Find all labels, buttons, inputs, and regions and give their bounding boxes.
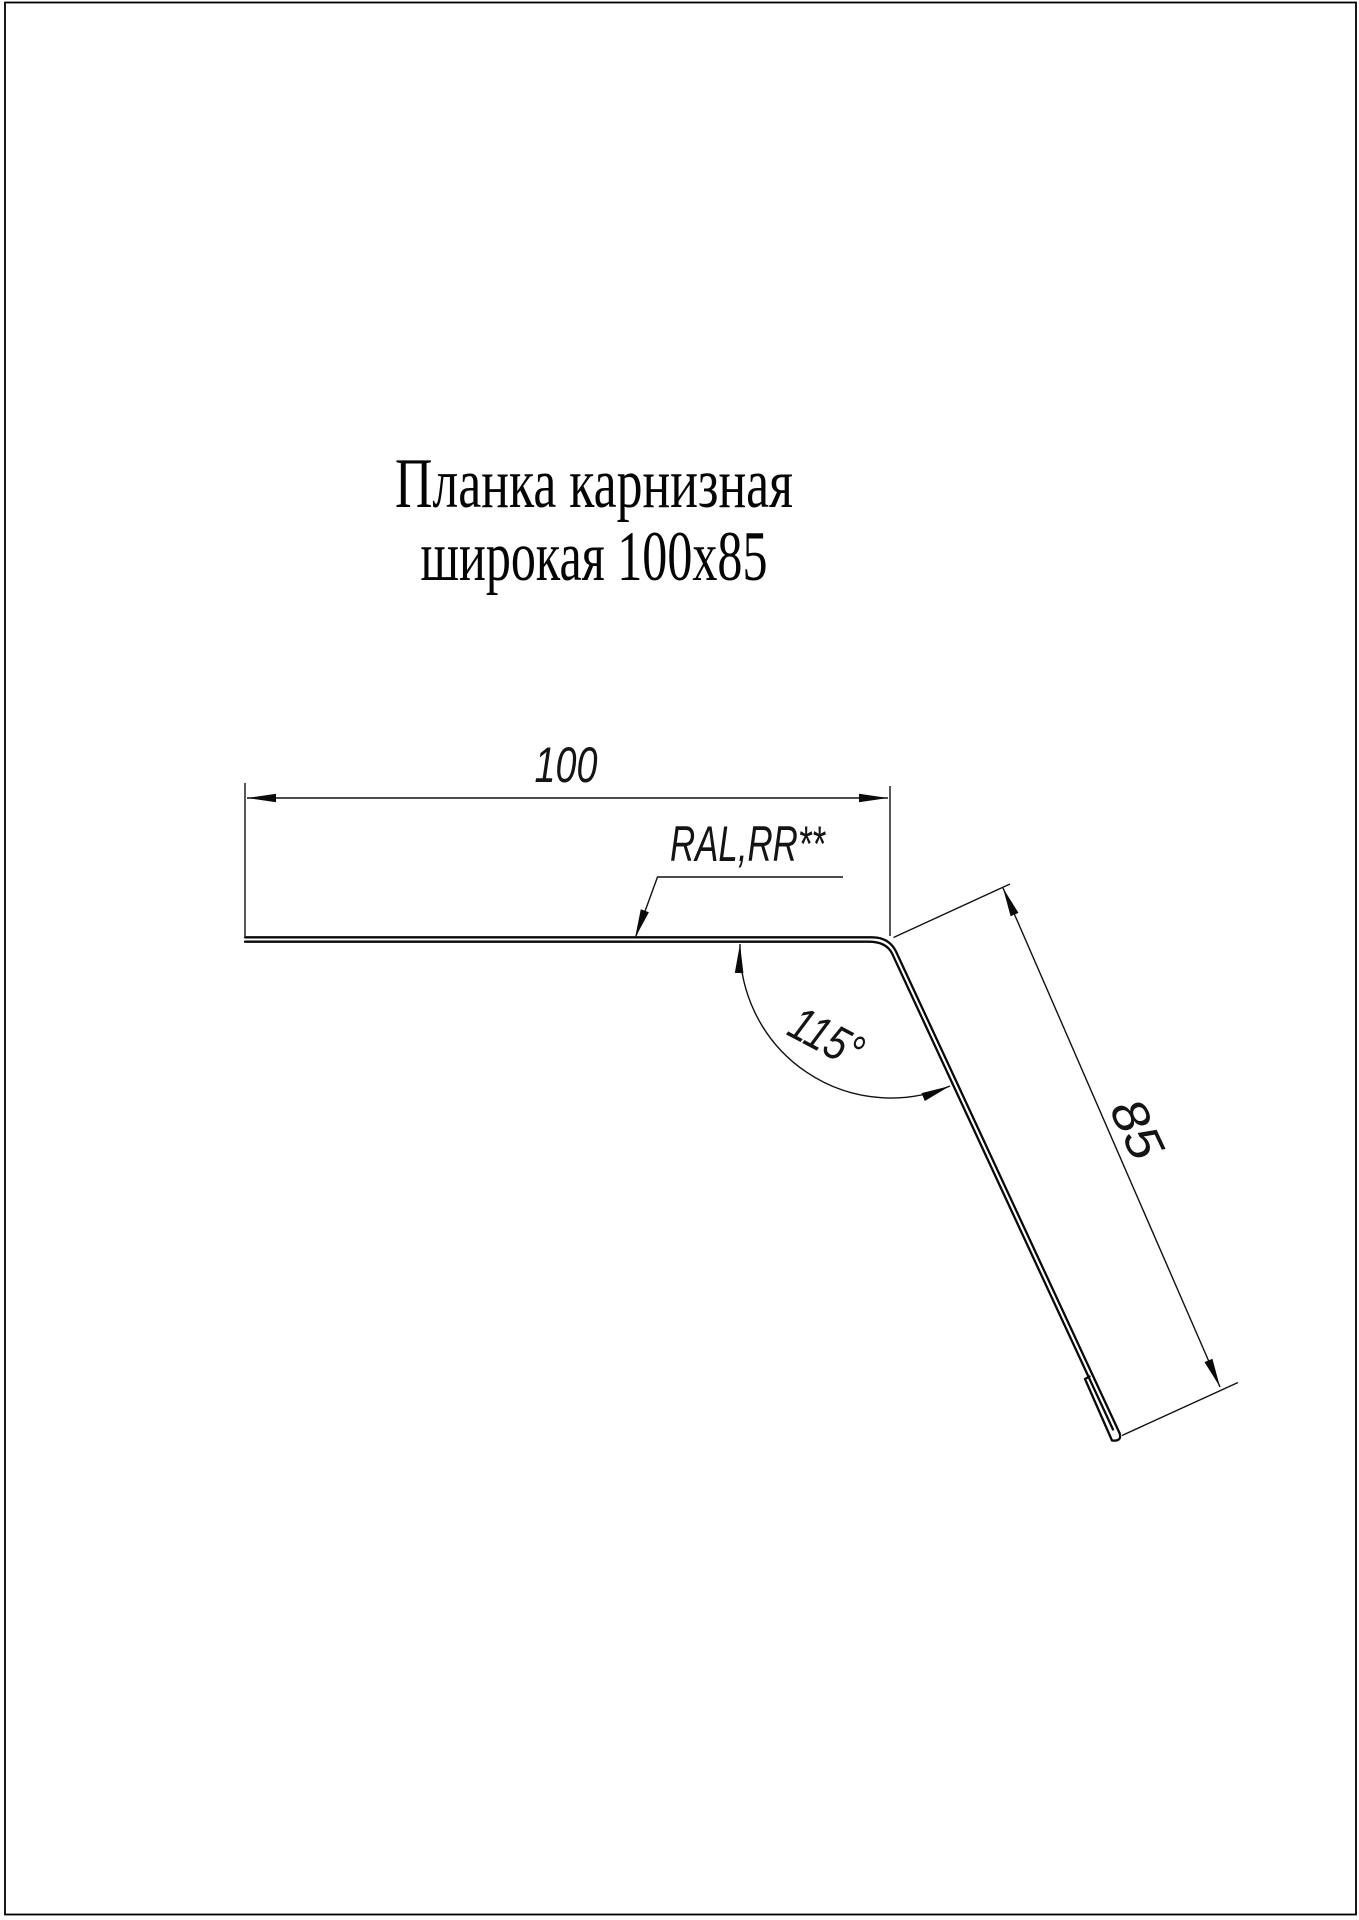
width-arrow-left bbox=[247, 794, 276, 803]
page-border bbox=[5, 3, 1356, 1915]
width-arrow-right bbox=[859, 794, 888, 803]
drawing-title: Планка карнизная широкая 100x85 bbox=[395, 445, 793, 596]
drawing-sheet: Планка карнизная широкая 100x85 100 85 bbox=[0, 0, 1359, 1920]
coating-leader-arrow bbox=[635, 909, 649, 938]
profile-inner-surface bbox=[245, 942, 1113, 1430]
height-dimension: 85 bbox=[894, 884, 1239, 1436]
coating-leader-line bbox=[636, 877, 843, 936]
height-arrow-bottom bbox=[1205, 1359, 1221, 1387]
angle-arrow-side bbox=[922, 1086, 951, 1101]
coating-leader: RAL,RR** bbox=[635, 816, 843, 938]
width-dimension-value: 100 bbox=[535, 737, 598, 793]
angle-dimension-value: 115° bbox=[780, 997, 872, 1079]
profile-outline bbox=[245, 937, 1120, 1440]
height-extension-line-bottom bbox=[1122, 1383, 1238, 1436]
height-dimension-value: 85 bbox=[1099, 1090, 1175, 1168]
cornice-strip-drawing-canvas: Планка карнизная широкая 100x85 100 85 bbox=[0, 0, 1359, 1920]
coating-label: RAL,RR** bbox=[670, 816, 826, 872]
profile-outer-surface bbox=[245, 937, 1120, 1433]
height-arrow-top bbox=[1003, 888, 1019, 916]
angle-dimension: 115° bbox=[735, 944, 950, 1101]
title-line-2: широкая 100x85 bbox=[421, 518, 768, 596]
angle-arrow-top bbox=[735, 944, 744, 973]
title-line-1: Планка карнизная bbox=[395, 445, 793, 523]
height-extension-line-top bbox=[894, 884, 1011, 938]
